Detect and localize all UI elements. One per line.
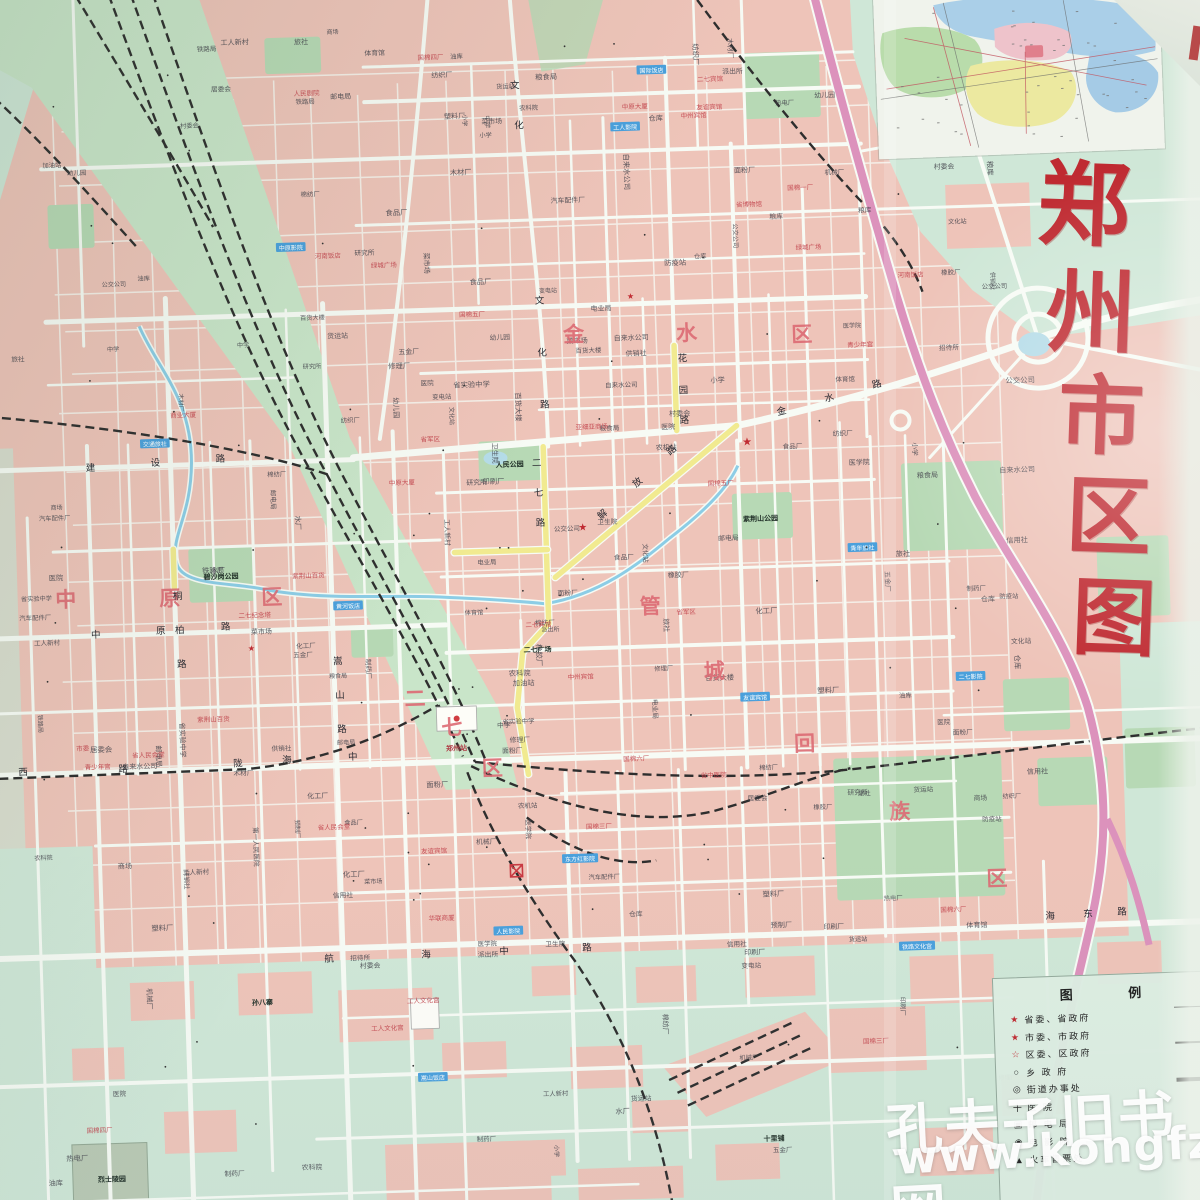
svg-text:区: 区 — [791, 323, 813, 347]
svg-text:居委会: 居委会 — [90, 745, 113, 755]
svg-text:面粉厂: 面粉厂 — [734, 165, 756, 175]
legend-label: 电 影 院 — [1028, 1134, 1070, 1148]
legend-label: 区委、区政府 — [1025, 1046, 1091, 1061]
svg-text:医学院: 医学院 — [843, 321, 862, 330]
svg-text:路: 路 — [118, 763, 128, 775]
svg-text:中: 中 — [499, 945, 509, 957]
svg-text:区: 区 — [986, 867, 1008, 891]
svg-text:仓库: 仓库 — [981, 594, 995, 603]
svg-text:纺织厂: 纺织厂 — [1002, 792, 1021, 801]
svg-text:仓库: 仓库 — [1013, 655, 1022, 670]
svg-text:中学: 中学 — [107, 345, 120, 353]
svg-text:路: 路 — [582, 941, 592, 953]
svg-text:医院: 医院 — [661, 422, 675, 431]
svg-text:粮库: 粮库 — [858, 205, 872, 214]
svg-text:自来水公司: 自来水公司 — [622, 153, 632, 190]
legend-label: 医 院 — [1027, 1100, 1054, 1114]
svg-text:仓库: 仓库 — [629, 909, 643, 918]
legend-line-medium — [1175, 1040, 1200, 1044]
svg-text:路: 路 — [679, 414, 689, 426]
svg-text:柏: 柏 — [175, 624, 185, 636]
svg-text:修理厂: 修理厂 — [388, 361, 410, 371]
svg-text:中: 中 — [91, 629, 101, 641]
svg-text:文: 文 — [535, 295, 545, 307]
svg-text:中: 中 — [348, 751, 358, 763]
svg-text:陇: 陇 — [233, 757, 243, 769]
svg-text:菜市场: 菜市场 — [364, 877, 383, 886]
svg-text:粮食局: 粮食局 — [917, 470, 939, 480]
svg-text:木材厂: 木材厂 — [177, 393, 186, 412]
svg-text:海: 海 — [282, 754, 292, 766]
svg-text:工人新村: 工人新村 — [220, 37, 249, 47]
svg-text:医院: 医院 — [420, 378, 434, 387]
legend-panel: 图 例 ★省委、省政府★市委、市政府☆区委、区政府○乡 政 府◎街道办事处十医 … — [992, 970, 1200, 1200]
svg-text:旅社: 旅社 — [294, 37, 308, 46]
map-photo: ★★★★国际饭店中原影院友谊宾馆交通旅社人民影院东方红影院青年旅社工人影院嵩山饭… — [0, 0, 1200, 1200]
svg-text:原: 原 — [156, 626, 166, 637]
svg-text:水厂: 水厂 — [293, 515, 302, 530]
svg-text:仓库: 仓库 — [649, 113, 663, 122]
legend-label: 市委、市政府 — [1025, 1028, 1091, 1043]
svg-text:水: 水 — [676, 322, 699, 346]
svg-text:路: 路 — [540, 398, 550, 410]
svg-text:七: 七 — [441, 716, 463, 740]
legend-label: 邮 电 局 — [1028, 1117, 1070, 1131]
legend-road-samples — [1174, 1005, 1200, 1116]
svg-text:小学: 小学 — [710, 375, 725, 384]
svg-text:食品厂: 食品厂 — [470, 277, 492, 287]
legend-line-thick — [1176, 1076, 1200, 1082]
svg-text:★: ★ — [627, 292, 634, 301]
svg-text:区: 区 — [481, 757, 503, 781]
legend-label: 省委、省政府 — [1024, 1011, 1090, 1026]
svg-text:小学: 小学 — [552, 1145, 560, 1157]
svg-text:加油站: 加油站 — [513, 678, 535, 688]
svg-text:中学: 中学 — [497, 720, 511, 729]
svg-text:油库: 油库 — [450, 51, 464, 60]
svg-text:信用社: 信用社 — [1006, 535, 1028, 545]
svg-text:商场: 商场 — [118, 861, 132, 870]
svg-text:★: ★ — [742, 436, 752, 448]
svg-text:木材厂: 木材厂 — [450, 167, 472, 177]
svg-text:机械厂: 机械厂 — [145, 988, 155, 1010]
svg-text:体育馆: 体育馆 — [465, 608, 484, 617]
svg-text:路: 路 — [215, 453, 225, 465]
svg-text:建: 建 — [86, 462, 96, 474]
svg-text:中: 中 — [55, 588, 77, 612]
svg-text:航: 航 — [324, 953, 334, 965]
svg-text:食品厂: 食品厂 — [385, 208, 407, 218]
svg-text:旅社: 旅社 — [11, 354, 25, 363]
svg-text:塑料厂: 塑料厂 — [151, 923, 173, 933]
svg-text:热电厂: 热电厂 — [66, 1153, 88, 1163]
svg-text:菜市场: 菜市场 — [422, 252, 432, 274]
svg-text:医院: 医院 — [113, 1089, 127, 1098]
legend-symbol: ★ — [1004, 1014, 1024, 1026]
svg-text:油库: 油库 — [137, 274, 150, 282]
svg-text:印刷厂: 印刷厂 — [823, 923, 844, 932]
legend-symbol: ○ — [1006, 1067, 1026, 1078]
svg-text:路: 路 — [177, 658, 187, 670]
svg-text:旅社: 旅社 — [858, 788, 872, 797]
svg-text:面粉厂: 面粉厂 — [426, 780, 448, 790]
svg-text:路: 路 — [221, 621, 231, 633]
svg-text:化工厂: 化工厂 — [343, 869, 365, 879]
svg-text:小学: 小学 — [479, 131, 492, 139]
svg-text:粮库: 粮库 — [769, 212, 783, 221]
svg-text:信用社: 信用社 — [1027, 766, 1049, 776]
svg-text:农科院: 农科院 — [34, 854, 53, 863]
svg-text:化: 化 — [537, 347, 547, 359]
legend-symbol: ▣ — [1008, 1119, 1028, 1131]
svg-text:管: 管 — [639, 594, 661, 619]
svg-text:塑料厂: 塑料厂 — [817, 685, 839, 695]
svg-text:城: 城 — [703, 659, 725, 684]
svg-text:小学: 小学 — [910, 442, 919, 456]
legend-label: 火车售票处 — [1029, 1151, 1084, 1166]
svg-text:文: 文 — [510, 79, 520, 91]
svg-text:化工厂: 化工厂 — [755, 606, 777, 616]
svg-text:粮库: 粮库 — [985, 161, 994, 177]
svg-text:海: 海 — [1045, 910, 1055, 922]
svg-text:塑料厂: 塑料厂 — [444, 111, 466, 121]
svg-text:商场: 商场 — [974, 793, 988, 802]
svg-text:仓库: 仓库 — [694, 252, 707, 260]
svg-text:化: 化 — [514, 119, 524, 131]
svg-text:预制厂: 预制厂 — [771, 920, 793, 930]
svg-text:水厂: 水厂 — [615, 1106, 630, 1115]
svg-text:中学: 中学 — [237, 341, 249, 349]
svg-text:文化站: 文化站 — [948, 217, 967, 226]
svg-text:防疫站: 防疫站 — [664, 258, 686, 268]
svg-text:山: 山 — [335, 690, 345, 701]
svg-text:纺织厂: 纺织厂 — [691, 43, 701, 65]
legend-symbol: ▲ — [1009, 1155, 1029, 1166]
svg-text:粮食局: 粮食局 — [535, 72, 557, 82]
svg-text:铁路局: 铁路局 — [36, 715, 45, 734]
svg-text:园: 园 — [679, 385, 689, 396]
svg-text:百货大楼: 百货大楼 — [513, 392, 523, 421]
svg-text:★: ★ — [248, 644, 255, 653]
legend-title: 图 例 — [1013, 979, 1200, 1005]
svg-text:百货大楼: 百货大楼 — [300, 313, 325, 322]
svg-text:设: 设 — [151, 458, 161, 469]
svg-text:医院: 医院 — [49, 573, 64, 582]
svg-text:二: 二 — [532, 458, 542, 469]
legend-label: 乡 政 府 — [1026, 1064, 1068, 1078]
svg-text:西: 西 — [18, 767, 28, 778]
svg-text:金: 金 — [562, 322, 586, 347]
svg-text:农科院: 农科院 — [509, 668, 532, 678]
svg-text:公交公司: 公交公司 — [731, 223, 740, 248]
svg-text:花: 花 — [678, 352, 688, 364]
legend-symbol: 十 — [1007, 1101, 1027, 1115]
svg-text:预制厂: 预制厂 — [293, 820, 302, 839]
svg-text:二: 二 — [404, 688, 426, 712]
svg-text:省实验中学: 省实验中学 — [453, 380, 490, 390]
legend-symbol: ◉ — [1008, 1137, 1028, 1149]
svg-text:区: 区 — [261, 586, 283, 610]
svg-text:货运站: 货运站 — [849, 935, 868, 944]
svg-text:路: 路 — [1117, 906, 1127, 918]
svg-text:公交公司: 公交公司 — [102, 280, 127, 289]
legend-rows: ★省委、省政府★市委、市政府☆区委、区政府○乡 政 府◎街道办事处十医 院▣邮 … — [1004, 1004, 1200, 1169]
svg-text:塑料厂: 塑料厂 — [762, 889, 784, 899]
svg-text:旅社: 旅社 — [662, 618, 671, 632]
svg-text:东: 东 — [1083, 908, 1093, 920]
svg-text:族: 族 — [889, 799, 912, 824]
svg-text:印刷厂: 印刷厂 — [744, 948, 765, 957]
legend-symbol: ☆ — [1005, 1049, 1025, 1061]
svg-text:体育馆: 体育馆 — [966, 920, 988, 930]
svg-text:桐: 桐 — [173, 590, 183, 602]
svg-text:医院: 医院 — [937, 717, 951, 726]
svg-text:市委: 市委 — [76, 744, 90, 753]
svg-text:邮电局: 邮电局 — [337, 738, 356, 747]
svg-text:橡胶厂: 橡胶厂 — [667, 570, 689, 580]
svg-text:路: 路 — [536, 517, 546, 529]
svg-text:油库: 油库 — [899, 690, 913, 699]
inset-region-map — [873, 0, 1165, 159]
svg-text:回: 回 — [794, 732, 816, 756]
svg-text:印刷厂: 印刷厂 — [898, 997, 907, 1016]
svg-text:七: 七 — [534, 488, 544, 499]
svg-text:路: 路 — [337, 723, 347, 735]
svg-text:油库: 油库 — [49, 1178, 63, 1187]
svg-text:省实验中学: 省实验中学 — [21, 594, 52, 603]
svg-text:嵩: 嵩 — [333, 656, 343, 667]
svg-text:自来水公司: 自来水公司 — [999, 465, 1035, 475]
legend-symbol: ◎ — [1007, 1084, 1027, 1096]
legend-symbol: ★ — [1005, 1032, 1025, 1044]
svg-text:旅社: 旅社 — [896, 549, 911, 558]
svg-text:海: 海 — [421, 948, 431, 960]
svg-text:研究所: 研究所 — [303, 362, 322, 371]
svg-text:供销社: 供销社 — [988, 272, 997, 291]
svg-text:公交公司: 公交公司 — [1005, 375, 1035, 385]
legend-label: 街道办事处 — [1027, 1081, 1082, 1096]
